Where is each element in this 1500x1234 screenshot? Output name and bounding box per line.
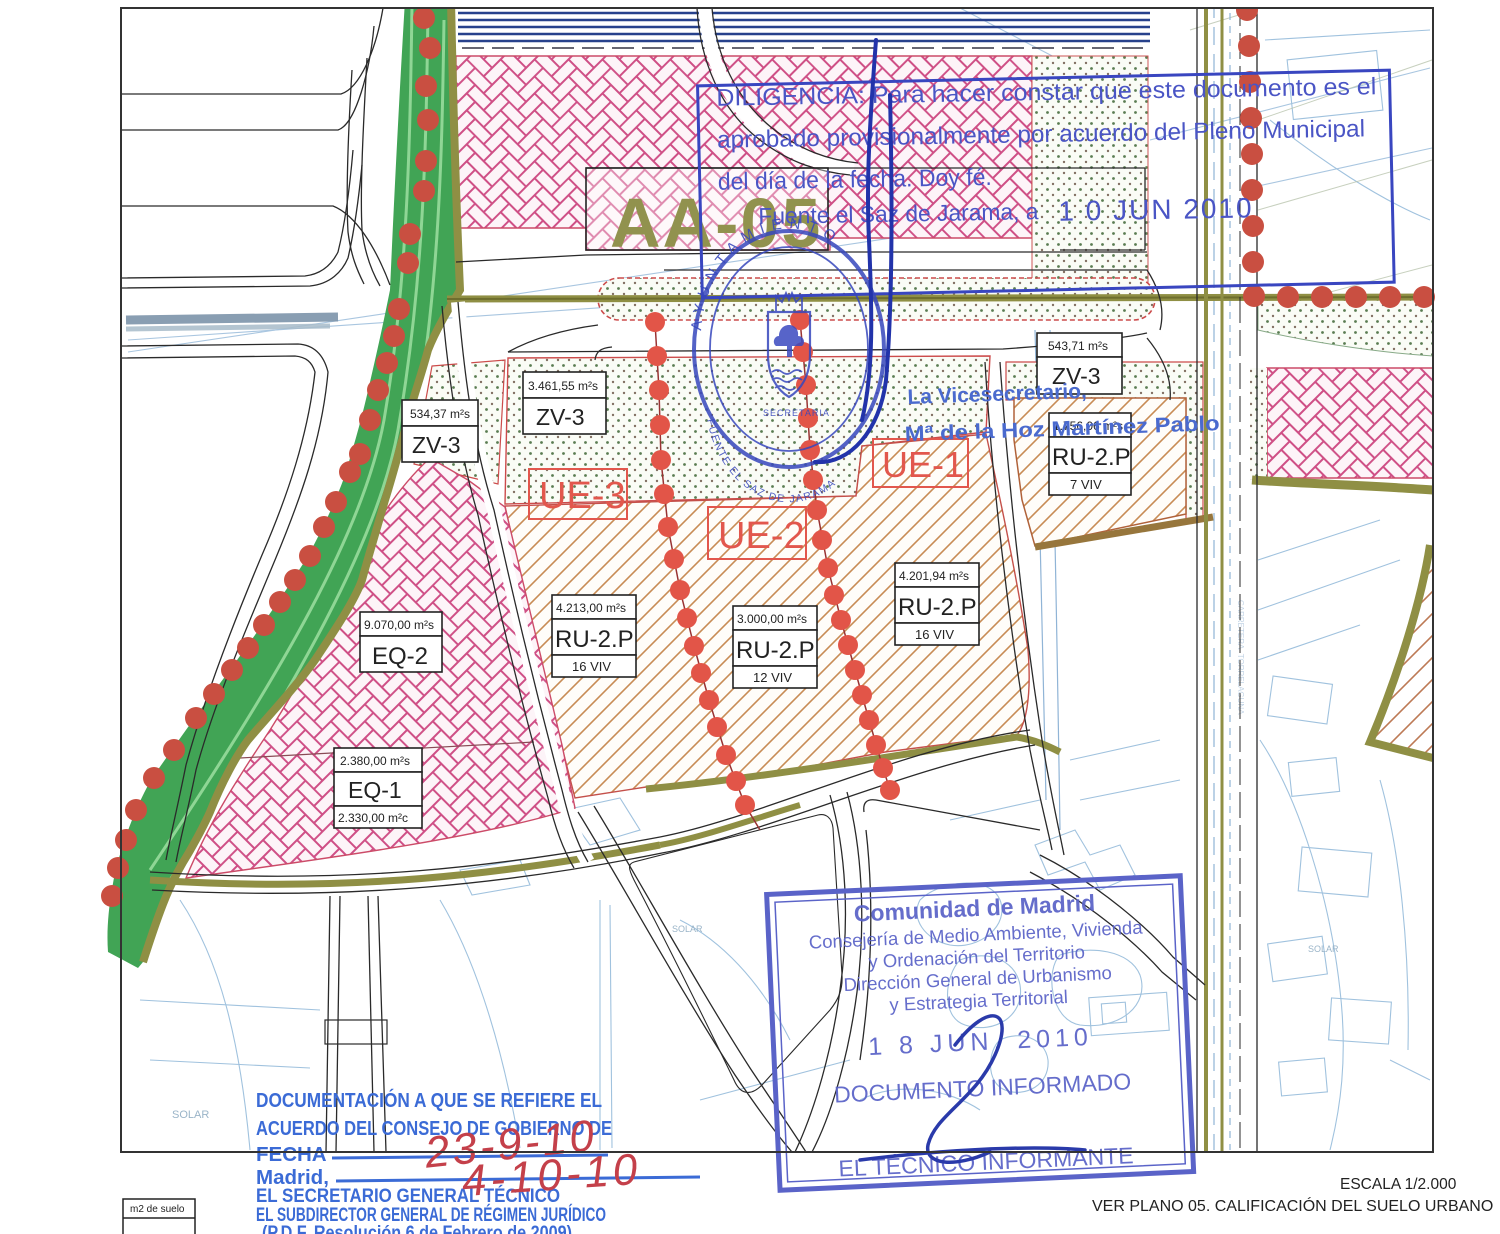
svg-text:ZV-3: ZV-3 <box>536 404 585 430</box>
svg-text:3.461,55 m²s: 3.461,55 m²s <box>528 379 598 393</box>
svg-text:EQ-2: EQ-2 <box>372 643 428 670</box>
svg-text:UE-3: UE-3 <box>539 475 626 517</box>
svg-text:4.201,94 m²s: 4.201,94 m²s <box>899 569 969 583</box>
svg-text:FECHA: FECHA <box>256 1143 327 1166</box>
svg-text:16 VIV: 16 VIV <box>915 627 954 642</box>
svg-text:2.330,00 m²c: 2.330,00 m²c <box>338 811 408 825</box>
svg-text:16 VIV: 16 VIV <box>572 659 611 674</box>
svg-text:12 VIV: 12 VIV <box>753 670 792 685</box>
svg-text:m2 de suelo: m2 de suelo <box>130 1204 185 1215</box>
svg-text:1 0 JUN 2010: 1 0 JUN 2010 <box>1058 192 1254 226</box>
svg-text:7 VIV: 7 VIV <box>1070 477 1102 492</box>
svg-text:2.380,00 m²s: 2.380,00 m²s <box>340 754 410 768</box>
svg-text:534,37 m²s: 534,37 m²s <box>410 407 470 421</box>
svg-text:543,71 m²s: 543,71 m²s <box>1048 339 1108 353</box>
svg-text:RU-2.P: RU-2.P <box>555 626 634 653</box>
svg-text:SOLAR: SOLAR <box>672 924 703 934</box>
svg-text:del día de la fecha. Doy fé.: del día de la fecha. Doy fé. <box>718 164 992 196</box>
svg-text:RU-2.P: RU-2.P <box>898 594 977 621</box>
svg-text:UE-1: UE-1 <box>882 444 964 485</box>
svg-text:DOCUMENTACIÓN A QUE SE REFIERE: DOCUMENTACIÓN A QUE SE REFIERE EL <box>256 1088 602 1112</box>
svg-text:RU-2.P: RU-2.P <box>736 637 815 664</box>
svg-text:ZV-3: ZV-3 <box>412 432 461 458</box>
svg-text:ESCALA 1/2.000: ESCALA 1/2.000 <box>1340 1176 1457 1193</box>
svg-text:RU-2.P: RU-2.P <box>1052 444 1131 471</box>
svg-text:UE-2: UE-2 <box>718 515 805 557</box>
svg-text:EQ-1: EQ-1 <box>348 777 402 803</box>
svg-text:SOLAR: SOLAR <box>1308 944 1339 954</box>
svg-text:4.213,00 m²s: 4.213,00 m²s <box>556 601 626 615</box>
svg-text:SECRETARIA: SECRETARIA <box>763 408 830 418</box>
svg-text:3.000,00 m²s: 3.000,00 m²s <box>737 612 807 626</box>
svg-text:9.070,00 m²s: 9.070,00 m²s <box>364 618 434 632</box>
svg-text:(P.D.F. Resolución 6 de Febrer: (P.D.F. Resolución 6 de Febrero de 2009) <box>262 1222 572 1234</box>
svg-text:SOLAR: SOLAR <box>172 1109 209 1121</box>
svg-text:VER PLANO 05. CALIFICACIÓN DE: VER PLANO 05. CALIFICACIÓN DEL SUELO URB… <box>1092 1196 1493 1215</box>
